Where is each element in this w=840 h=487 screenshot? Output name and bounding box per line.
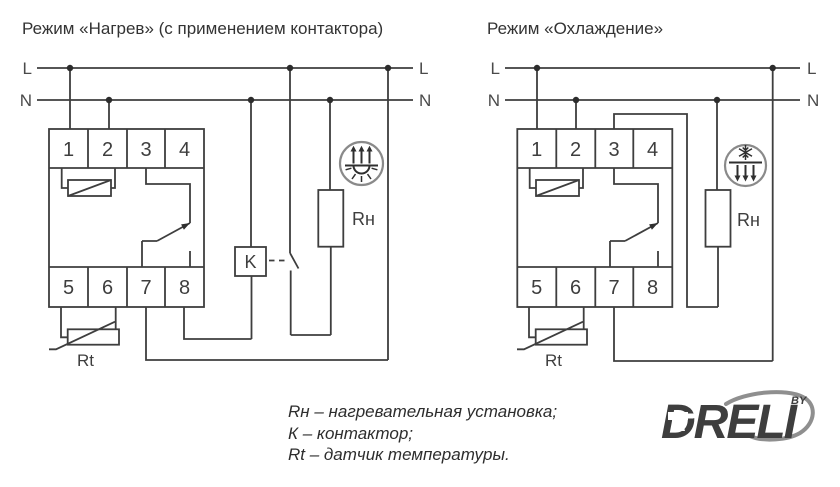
heater-label-cooling: Rн: [737, 210, 760, 230]
terminal-label-3: 3: [140, 139, 151, 161]
terminal-label-6: 6: [570, 277, 581, 299]
relay-coil-symbol-heating: [62, 168, 115, 196]
cooling-l-left-label: L: [491, 59, 500, 78]
terminal-label-7: 7: [608, 277, 619, 299]
cooling-junction-dots: [534, 65, 776, 103]
sensor-label-cooling: Rt: [545, 351, 562, 370]
thermistor-symbol-heating: [49, 307, 119, 349]
heater-label-heating: Rн: [352, 209, 375, 229]
terminal-label-8: 8: [647, 277, 658, 299]
heating-n-left-label: N: [20, 91, 32, 110]
terminal-label-2: 2: [102, 139, 113, 161]
heating-n-right-label: N: [419, 91, 431, 110]
terminal-label-1: 1: [63, 139, 74, 161]
thermistor-symbol-cooling: [517, 307, 587, 349]
relay-contact-symbol-heating: [142, 168, 190, 267]
heating-l-left-label: L: [23, 59, 32, 78]
relay-contact-symbol-cooling: [610, 168, 658, 267]
terminal-label-4: 4: [179, 139, 190, 161]
terminal-label-1: 1: [531, 139, 542, 161]
terminal-label-4: 4: [647, 139, 658, 161]
cooling-n-right-label: N: [807, 91, 819, 110]
terminal-label-7: 7: [140, 277, 151, 299]
logo-by-text: BY: [791, 395, 808, 407]
heater-resistor-cooling: [706, 190, 731, 307]
cooling-diagram: L N L N 1 2 3 4 5 6 7 8 Rн Rt: [488, 59, 820, 370]
terminal-label-6: 6: [102, 277, 113, 299]
heating-diagram: L N L N 1 2 3 4 5 6 7 8 K Rн Rt: [20, 59, 432, 370]
terminal-label-5: 5: [531, 277, 542, 299]
heating-l-right-label: L: [419, 59, 428, 78]
heating-junction-dots: [67, 65, 391, 103]
schematic-sheet: Режим «Нагрев» (с применением контактора…: [0, 0, 840, 487]
terminal-label-3: 3: [608, 139, 619, 161]
cooling-l-right-label: L: [807, 59, 816, 78]
dreli-logo: DRELI BY: [661, 392, 813, 449]
contactor-contact-symbol: [290, 253, 299, 335]
legend-line-contactor: К – контактор;: [288, 423, 557, 445]
sensor-label-heating: Rt: [77, 351, 94, 370]
terminal-label-8: 8: [179, 277, 190, 299]
terminal-label-2: 2: [570, 139, 581, 161]
cooling-icon: [725, 145, 766, 186]
legend-line-heater: Rн – нагревательная установка;: [288, 401, 557, 423]
relay-coil-symbol-cooling: [530, 168, 583, 196]
cooling-output-wiring: [614, 307, 773, 361]
heater-resistor-heating: [291, 190, 344, 335]
legend-line-sensor: Rt – датчик температуры.: [288, 444, 557, 466]
terminal-label-5: 5: [63, 277, 74, 299]
cooling-n-left-label: N: [488, 91, 500, 110]
contactor-label: K: [244, 252, 256, 272]
legend: Rн – нагревательная установка; К – конта…: [288, 401, 557, 466]
heating-icon: [340, 142, 383, 185]
